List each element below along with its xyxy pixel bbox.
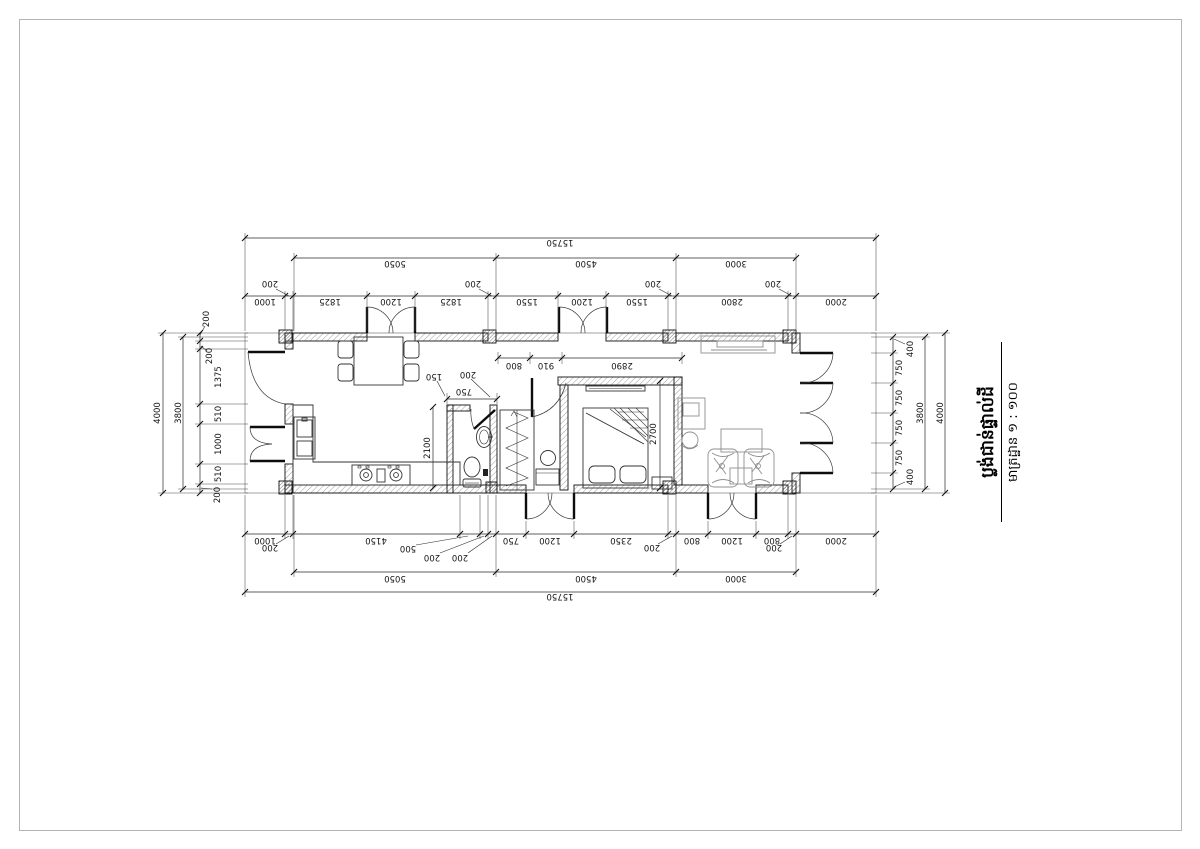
dim-label: 750 bbox=[895, 360, 905, 376]
dim-label: 200 bbox=[765, 278, 781, 288]
dim-label: 2000 bbox=[825, 535, 847, 545]
dim-label: 510 bbox=[214, 406, 224, 422]
dim-label: 15750 bbox=[546, 591, 573, 601]
dim-label: 200 bbox=[262, 278, 278, 288]
dim-label: 200 bbox=[262, 542, 278, 552]
dim-label: 1550 bbox=[516, 296, 538, 306]
dim-label: 3000 bbox=[725, 258, 747, 268]
dim-label: 510 bbox=[214, 466, 224, 482]
dim-label: 200 bbox=[465, 278, 481, 288]
dim-label: 1550 bbox=[626, 296, 648, 306]
dimensions-right: 400 400 750 750 750 750 3800 4000 bbox=[871, 330, 950, 496]
dim-label: 200 bbox=[460, 369, 476, 379]
dim-label: 200 bbox=[424, 552, 440, 562]
pillow bbox=[620, 466, 646, 483]
left-door-upper bbox=[248, 352, 285, 404]
dim-label: 2000 bbox=[825, 296, 847, 306]
dim-label: 2800 bbox=[721, 296, 743, 306]
hall-desk bbox=[536, 451, 559, 486]
dim-label: 200 bbox=[644, 542, 660, 552]
dim-label: 2890 bbox=[611, 360, 633, 370]
dim-label: 200 bbox=[766, 542, 782, 552]
side-table bbox=[730, 468, 752, 484]
dim-label: 200 bbox=[213, 487, 223, 503]
dim-label: 800 bbox=[684, 535, 700, 545]
kitchen-sink bbox=[294, 417, 315, 459]
dim-label: 750 bbox=[456, 386, 472, 396]
dim-label: 1200 bbox=[721, 535, 743, 545]
dim-label: 1000 bbox=[214, 433, 224, 455]
top-double-door-2 bbox=[559, 307, 607, 333]
dim-label: 200 bbox=[645, 278, 661, 288]
dim-label: 750 bbox=[895, 390, 905, 406]
dim-label: 1200 bbox=[380, 296, 402, 306]
dim-label: 3800 bbox=[174, 402, 184, 424]
dim-label: 15750 bbox=[546, 237, 573, 247]
dim-label: 400 bbox=[906, 469, 916, 485]
dim-label: 1825 bbox=[319, 296, 341, 306]
dim-label: 4500 bbox=[575, 573, 597, 583]
drawing-scale: មាត្រដ្ឋាន ១ : ១០០ bbox=[1002, 342, 1024, 522]
drawing-sheet: 15750 5050 4500 3000 200 200 200 200 100… bbox=[0, 0, 1200, 849]
bottom-double-door-1 bbox=[526, 493, 574, 519]
dim-label: 750 bbox=[503, 535, 519, 545]
tv bbox=[717, 341, 763, 347]
bath-drain bbox=[483, 469, 488, 476]
dim-label: 2700 bbox=[649, 423, 659, 445]
dim-label: 500 bbox=[400, 543, 416, 553]
computer bbox=[683, 403, 699, 416]
living-room bbox=[678, 336, 775, 487]
dim-label: 1200 bbox=[571, 296, 593, 306]
dim-label: 3800 bbox=[916, 402, 926, 424]
dimensions-top: 15750 5050 4500 3000 200 200 200 200 100… bbox=[242, 233, 879, 331]
pillow bbox=[589, 466, 615, 483]
title-block: ប្លង់ជាន់ផ្ទាល់ដី មាត្រដ្ឋាន ១ : ១០០ bbox=[978, 342, 1026, 522]
dim-label: 1375 bbox=[214, 366, 224, 388]
dim-label: 2350 bbox=[610, 535, 632, 545]
dim-label: 750 bbox=[895, 420, 905, 436]
dim-label: 4150 bbox=[365, 535, 387, 545]
staircase bbox=[500, 410, 534, 490]
dim-label: 1200 bbox=[539, 535, 561, 545]
dim-label: 4000 bbox=[936, 402, 946, 424]
left-door-lower bbox=[250, 427, 285, 461]
dim-label: 1825 bbox=[440, 296, 462, 306]
top-double-door-1 bbox=[367, 307, 415, 333]
right-folding-doors bbox=[800, 353, 833, 473]
dim-label: 4500 bbox=[575, 258, 597, 268]
dim-label: 200 bbox=[205, 348, 215, 364]
kitchen-stove bbox=[352, 465, 410, 485]
dim-label: 750 bbox=[895, 450, 905, 466]
dim-label: 910 bbox=[538, 360, 554, 370]
toilet bbox=[463, 457, 488, 487]
dimensions-left: 4000 3800 200 200 200 1375 510 1000 510 bbox=[153, 311, 248, 503]
office-chair bbox=[682, 432, 698, 448]
dim-label: 400 bbox=[906, 341, 916, 357]
dim-label: 4000 bbox=[153, 402, 163, 424]
dining-table bbox=[338, 337, 419, 385]
dim-label: 200 bbox=[452, 552, 468, 562]
dim-label: 1000 bbox=[254, 296, 276, 306]
kitchen-counter bbox=[293, 405, 460, 485]
dimensions-bottom: 1000 4150 750 1200 2350 800 1200 800 200… bbox=[242, 495, 879, 601]
dim-label: 5050 bbox=[384, 258, 406, 268]
dim-label: 5050 bbox=[384, 573, 406, 583]
dim-label: 150 bbox=[426, 371, 442, 381]
dim-label: 2100 bbox=[423, 437, 433, 459]
dim-label: 3000 bbox=[725, 573, 747, 583]
dim-label: 200 bbox=[202, 311, 212, 327]
dim-label: 800 bbox=[506, 360, 522, 370]
bottom-double-door-2 bbox=[708, 493, 756, 519]
drawing-title: ប្លង់ជាន់ផ្ទាល់ដី bbox=[978, 342, 1002, 522]
